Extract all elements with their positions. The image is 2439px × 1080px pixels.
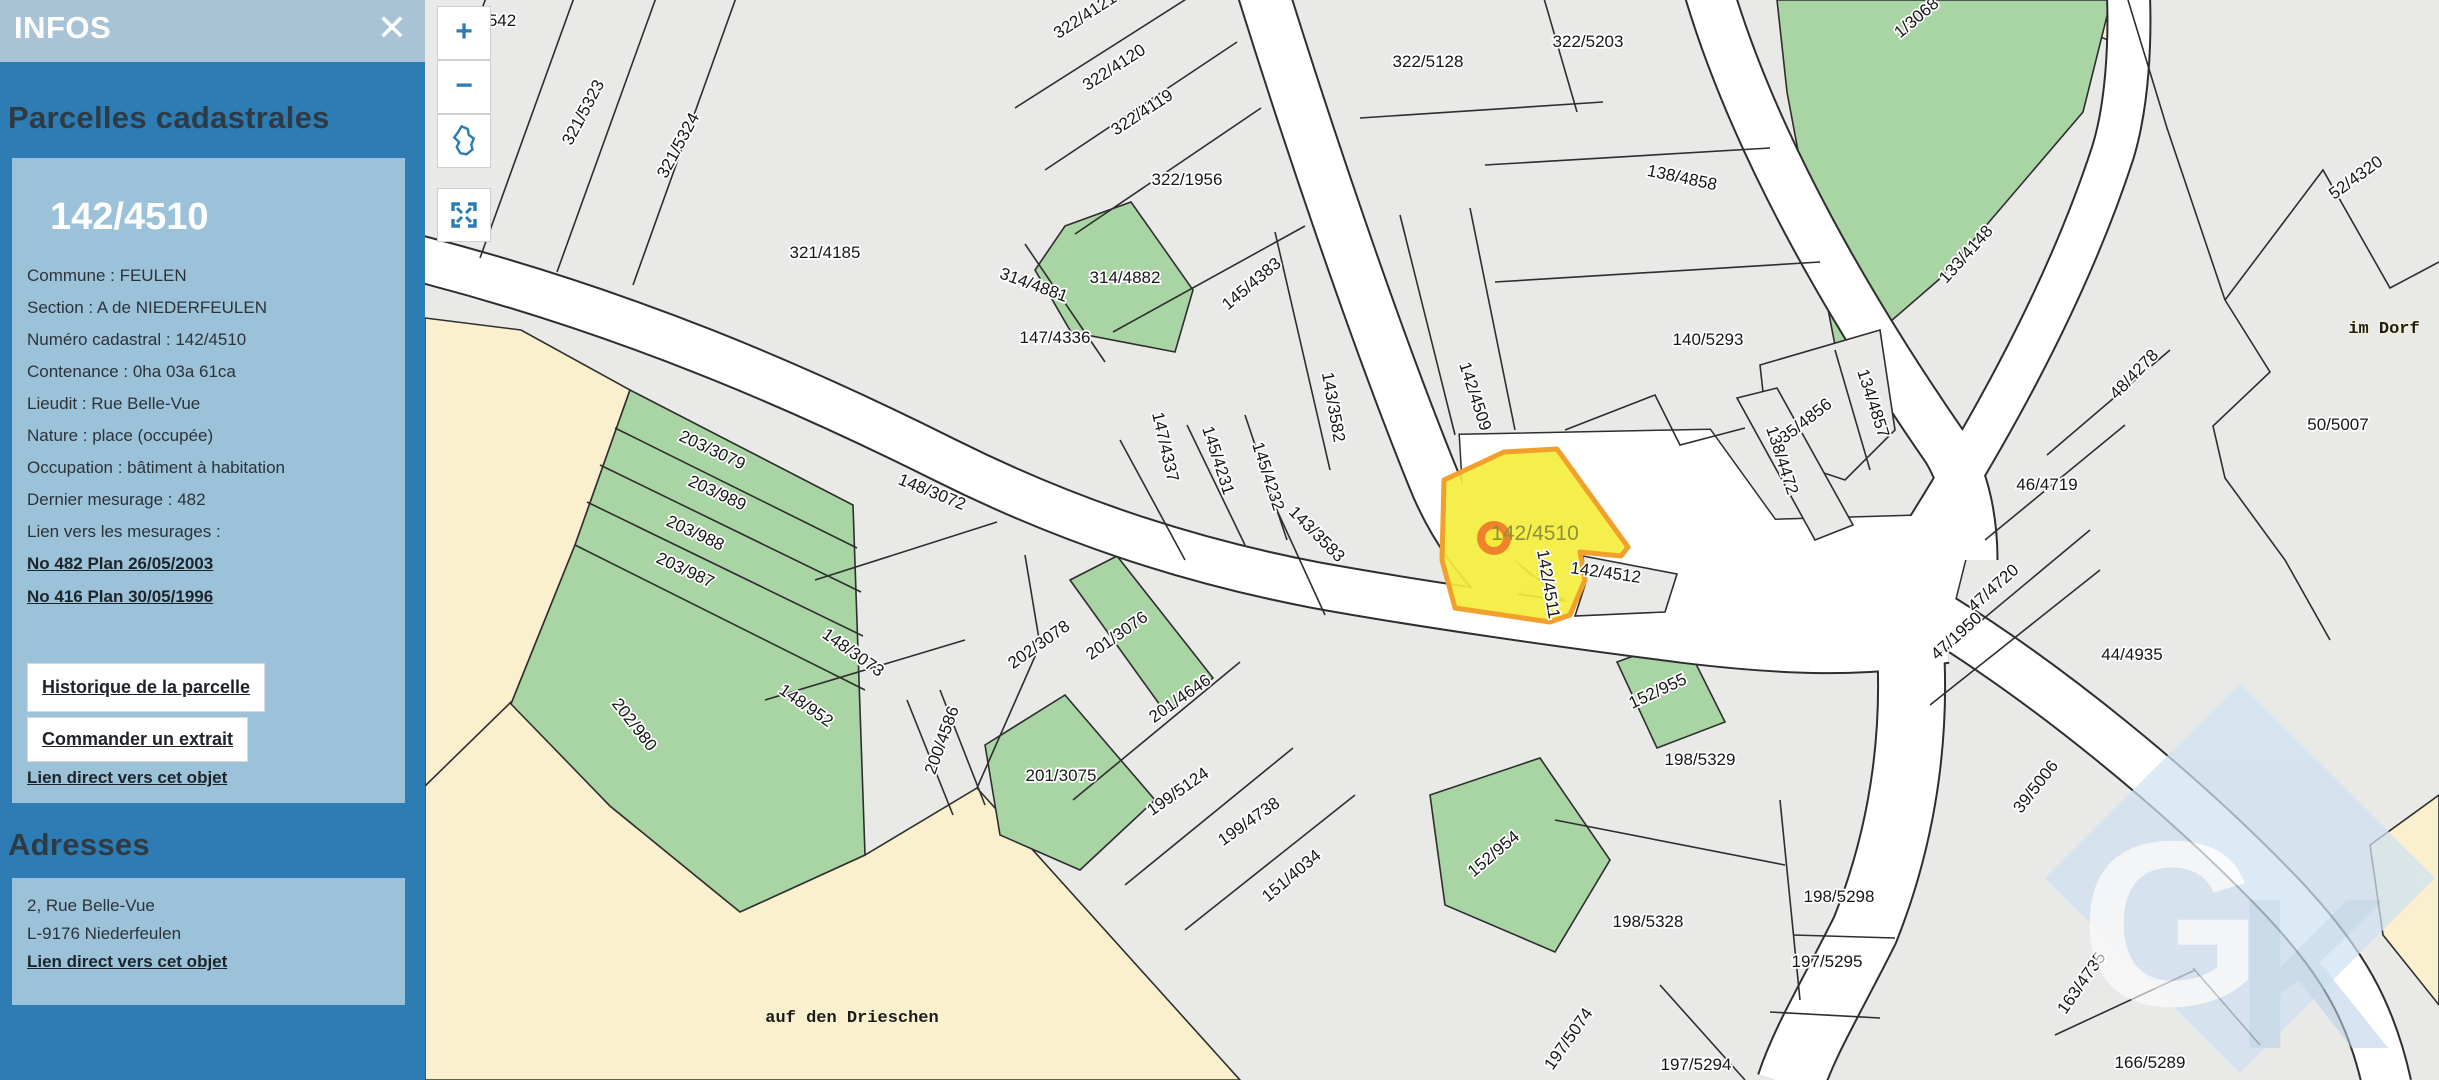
parcel-label: 50/5007 (2307, 415, 2368, 434)
parcel-label: 46/4719 (2016, 475, 2077, 494)
watermark-letter-k: K (2235, 853, 2390, 1080)
mesurage-link-416[interactable]: No 416 Plan 30/05/1996 (27, 587, 213, 607)
lux-extent-button[interactable] (437, 114, 491, 168)
parcel-label: 198/5329 (1665, 750, 1736, 769)
map-svg[interactable]: 542321/5323321/5324321/4185322/4121322/4… (425, 0, 2439, 1080)
zoom-out-button[interactable]: − (437, 60, 491, 114)
parcel-card: 142/4510 Commune : FEULEN Section : A de… (12, 158, 405, 803)
parcel-number: 142/4510 (50, 196, 209, 239)
lien-direct-adresse[interactable]: Lien direct vers cet objet (27, 952, 227, 972)
luxembourg-outline-icon (449, 124, 479, 158)
parcel-label: 140/5293 (1673, 330, 1744, 349)
address-line-city: L-9176 Niederfeulen (27, 924, 181, 944)
parcel-label: 197/5294 (1661, 1055, 1732, 1074)
address-card: 2, Rue Belle-Vue L-9176 Niederfeulen Lie… (12, 878, 405, 1005)
parcel-row-numero: Numéro cadastral : 142/4510 (27, 330, 246, 350)
parcel-label: 166/5289 (2115, 1053, 2186, 1072)
selected-parcel-label: 142/4510 (1491, 522, 1579, 545)
fullscreen-icon (449, 200, 479, 230)
parcel-label: 198/5328 (1613, 912, 1684, 931)
mesurage-link-482[interactable]: No 482 Plan 26/05/2003 (27, 554, 213, 574)
map-area[interactable]: 542321/5323321/5324321/4185322/4121322/4… (425, 0, 2439, 1080)
commander-button[interactable]: Commander un extrait (27, 717, 248, 762)
parcel-row-mesurage: Dernier mesurage : 482 (27, 490, 206, 510)
address-line-street: 2, Rue Belle-Vue (27, 896, 155, 916)
section-heading-parcelles: Parcelles cadastrales (8, 100, 330, 136)
parcel-row-nature: Nature : place (occupée) (27, 426, 213, 446)
parcel-row-contenance: Contenance : 0ha 03a 61ca (27, 362, 236, 382)
parcel-label: 542 (488, 11, 516, 30)
fullscreen-button[interactable] (437, 188, 491, 242)
parcel-row-occupation: Occupation : bâtiment à habitation (27, 458, 285, 478)
sidebar-header: INFOS ✕ (0, 0, 425, 62)
parcel-row-lien-mesurages: Lien vers les mesurages : (27, 522, 221, 542)
sidebar-title: INFOS (14, 10, 111, 46)
placename-label: im Dorf (2348, 320, 2419, 339)
parcel-label: 322/5203 (1553, 32, 1624, 51)
parcel-label: 322/1956 (1152, 170, 1223, 189)
parcel-label: 44/4935 (2101, 645, 2162, 664)
parcel-label: 197/5295 (1792, 952, 1863, 971)
parcel-label: 201/3075 (1026, 766, 1097, 785)
placename-label: auf den Drieschen (765, 1009, 938, 1028)
parcel-row-section: Section : A de NIEDERFEULEN (27, 298, 267, 318)
parcel-row-commune: Commune : FEULEN (27, 266, 187, 286)
parcel-label: 198/5298 (1804, 887, 1875, 906)
historique-button[interactable]: Historique de la parcelle (27, 663, 265, 712)
parcel-label: 314/4882 (1090, 268, 1161, 287)
parcel-label: 147/4336 (1020, 328, 1091, 347)
zoom-in-button[interactable]: + (437, 6, 491, 60)
parcel-label: 321/4185 (790, 243, 861, 262)
parcel-row-lieudit: Lieudit : Rue Belle-Vue (27, 394, 200, 414)
info-sidebar: INFOS ✕ Parcelles cadastrales 142/4510 C… (0, 0, 425, 1080)
parcel-label: 322/5128 (1393, 52, 1464, 71)
section-heading-adresses: Adresses (8, 827, 150, 863)
lien-direct-parcelle[interactable]: Lien direct vers cet objet (27, 768, 227, 788)
close-icon[interactable]: ✕ (377, 6, 407, 50)
cadastre-app: 542321/5323321/5324321/4185322/4121322/4… (0, 0, 2439, 1080)
